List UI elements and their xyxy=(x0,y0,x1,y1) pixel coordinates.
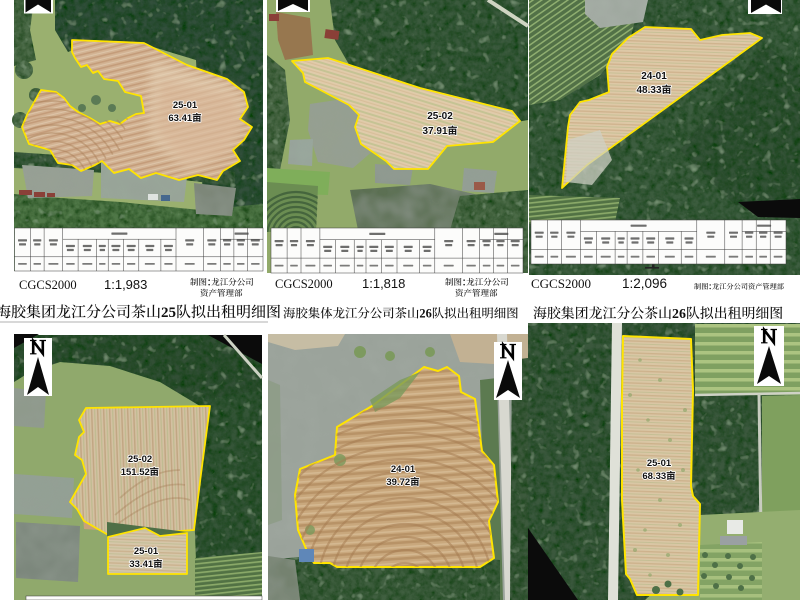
svg-text:25: 25 xyxy=(161,305,176,321)
svg-text:33.41: 33.41 xyxy=(129,559,153,570)
svg-text:26: 26 xyxy=(672,307,686,322)
svg-text:39.72: 39.72 xyxy=(386,477,410,488)
svg-text:24-01: 24-01 xyxy=(391,464,416,475)
svg-text:CGCS2000: CGCS2000 xyxy=(275,277,333,291)
svg-text:63.41: 63.41 xyxy=(168,113,192,124)
svg-text:151.52: 151.52 xyxy=(121,467,150,478)
svg-text:25-01: 25-01 xyxy=(173,100,198,111)
svg-text:25-02: 25-02 xyxy=(128,454,152,465)
svg-text:26: 26 xyxy=(419,307,431,321)
svg-text:48.33: 48.33 xyxy=(636,85,661,96)
svg-text:1:1,983: 1:1,983 xyxy=(104,277,147,292)
svg-text:25-01: 25-01 xyxy=(647,458,672,469)
svg-text:25-01: 25-01 xyxy=(134,546,159,557)
svg-text:1:2,096: 1:2,096 xyxy=(622,276,667,291)
svg-text:1:1,818: 1:1,818 xyxy=(362,276,405,291)
svg-text:CGCS2000: CGCS2000 xyxy=(19,278,77,292)
svg-text:25-02: 25-02 xyxy=(427,111,453,122)
svg-text:37.91: 37.91 xyxy=(422,126,447,137)
svg-text:24-01: 24-01 xyxy=(641,71,667,82)
svg-text:CGCS2000: CGCS2000 xyxy=(531,276,591,291)
svg-text:68.33: 68.33 xyxy=(642,471,666,482)
